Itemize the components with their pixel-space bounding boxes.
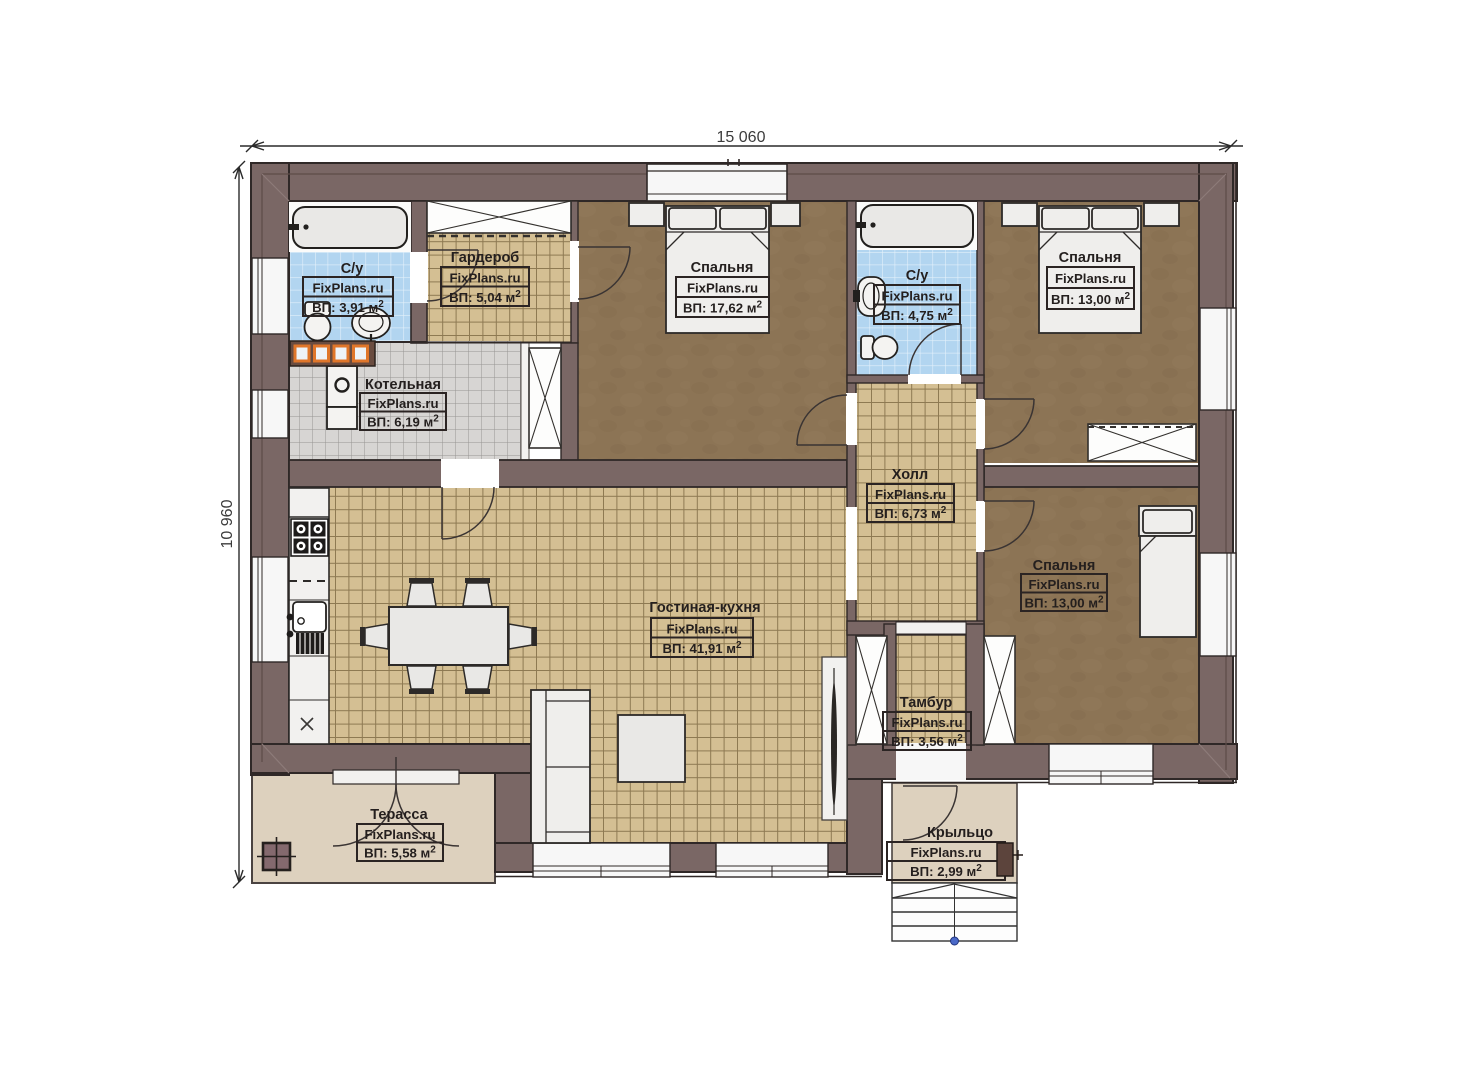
svg-text:FixPlans.ru: FixPlans.ru [881, 288, 952, 303]
svg-text:Крыльцо: Крыльцо [927, 825, 993, 841]
svg-text:FixPlans.ru: FixPlans.ru [1055, 271, 1126, 286]
svg-text:FixPlans.ru: FixPlans.ru [687, 281, 758, 296]
svg-text:Гостиная-кухня: Гостиная-кухня [649, 600, 760, 616]
svg-text:FixPlans.ru: FixPlans.ru [875, 487, 946, 502]
svg-text:ВП: 4,75 м2: ВП: 4,75 м2 [881, 307, 953, 323]
svg-text:Терасса: Терасса [370, 807, 428, 823]
svg-text:10 960: 10 960 [219, 499, 236, 548]
svg-text:ВП: 6,73 м2: ВП: 6,73 м2 [875, 505, 947, 521]
svg-text:Котельная: Котельная [365, 377, 441, 393]
svg-text:FixPlans.ru: FixPlans.ru [1028, 577, 1099, 592]
svg-text:ВП: 13,00 м2: ВП: 13,00 м2 [1024, 594, 1103, 610]
svg-text:С/у: С/у [906, 268, 929, 284]
svg-text:ВП: 5,04 м2: ВП: 5,04 м2 [449, 289, 521, 305]
svg-text:ВП: 41,91 м2: ВП: 41,91 м2 [662, 640, 741, 656]
svg-text:ВП: 2,99 м2: ВП: 2,99 м2 [910, 863, 982, 879]
svg-text:ВП: 17,62 м2: ВП: 17,62 м2 [683, 300, 762, 316]
svg-text:FixPlans.ru: FixPlans.ru [891, 715, 962, 730]
svg-text:Холл: Холл [892, 467, 928, 483]
svg-text:С/у: С/у [341, 261, 364, 277]
svg-text:ВП: 3,91 м2: ВП: 3,91 м2 [312, 299, 384, 315]
svg-text:Гардероб: Гардероб [451, 250, 520, 266]
svg-text:Тамбур: Тамбур [900, 695, 953, 711]
svg-text:15 060: 15 060 [717, 129, 766, 146]
svg-text:FixPlans.ru: FixPlans.ru [312, 280, 383, 295]
svg-text:FixPlans.ru: FixPlans.ru [364, 827, 435, 842]
svg-text:FixPlans.ru: FixPlans.ru [666, 621, 737, 636]
svg-text:Спальня: Спальня [1033, 558, 1096, 574]
svg-text:FixPlans.ru: FixPlans.ru [367, 396, 438, 411]
svg-text:ВП: 5,58 м2: ВП: 5,58 м2 [364, 844, 436, 860]
svg-text:ВП: 6,19 м2: ВП: 6,19 м2 [367, 413, 439, 429]
svg-text:FixPlans.ru: FixPlans.ru [910, 845, 981, 860]
svg-text:Спальня: Спальня [1059, 250, 1122, 266]
svg-text:ВП: 13,00 м2: ВП: 13,00 м2 [1051, 291, 1130, 307]
svg-text:FixPlans.ru: FixPlans.ru [449, 270, 520, 285]
svg-text:ВП: 3,56 м2: ВП: 3,56 м2 [891, 733, 963, 749]
svg-text:Спальня: Спальня [691, 260, 754, 276]
